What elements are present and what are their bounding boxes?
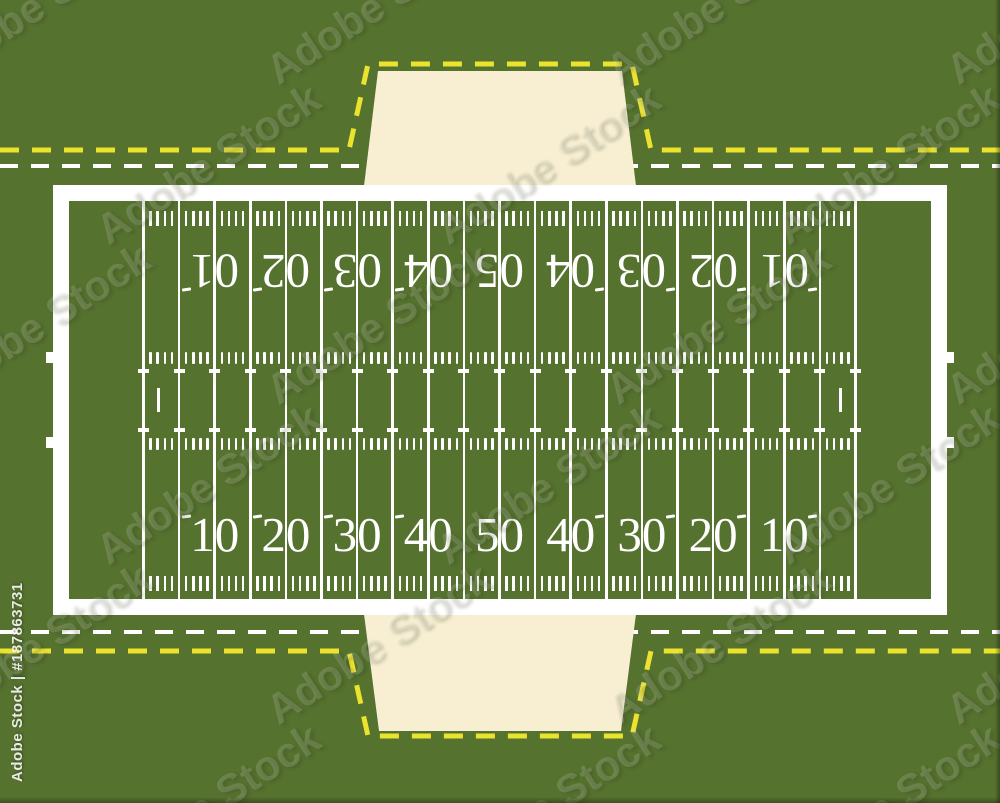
yard-tick-bottom bbox=[221, 576, 224, 591]
yard-tick-top bbox=[769, 211, 772, 226]
hash-mark-upper bbox=[548, 352, 551, 364]
hash-mark-upper bbox=[206, 352, 209, 364]
yard-number-bottom: 30 bbox=[602, 510, 682, 560]
yard-tick-bottom bbox=[477, 576, 480, 591]
yard-tick-top bbox=[584, 211, 587, 226]
hash-crossbar-lower bbox=[565, 428, 576, 432]
hash-crossbar-lower bbox=[636, 428, 647, 432]
yard-tick-bottom bbox=[776, 576, 779, 591]
yard-number-bottom: 20 bbox=[246, 510, 326, 560]
hash-mark-lower bbox=[719, 438, 722, 450]
yard-tick-top bbox=[698, 211, 701, 226]
hash-mark-lower bbox=[655, 438, 658, 450]
yard-tick-bottom bbox=[156, 576, 159, 591]
hash-mark-upper bbox=[847, 352, 850, 364]
yard-tick-top bbox=[612, 211, 615, 226]
yard-tick-bottom bbox=[541, 576, 544, 591]
yard-tick-top bbox=[406, 211, 409, 226]
yard-tick-top bbox=[762, 211, 765, 226]
hash-crossbar-upper bbox=[779, 369, 790, 373]
hash-mark-upper bbox=[164, 352, 167, 364]
yard-number-bottom: 10 bbox=[744, 510, 824, 560]
yard-tick-top bbox=[299, 211, 302, 226]
yard-tick-bottom bbox=[619, 576, 622, 591]
yard-number-bottom: 40 bbox=[531, 510, 611, 560]
yard-number-text: 01 bbox=[760, 246, 809, 296]
yard-tick-top bbox=[349, 211, 352, 226]
yard-tick-bottom bbox=[740, 576, 743, 591]
hash-mark-lower bbox=[740, 438, 743, 450]
hash-crossbar-lower bbox=[352, 428, 363, 432]
hash-mark-upper bbox=[235, 352, 238, 364]
hash-mark-upper bbox=[755, 352, 758, 364]
yard-tick-bottom bbox=[797, 576, 800, 591]
yard-tick-bottom bbox=[199, 576, 202, 591]
yard-tick-top bbox=[541, 211, 544, 226]
hash-mark-upper bbox=[690, 352, 693, 364]
hash-mark-lower bbox=[555, 438, 558, 450]
hash-crossbar-upper bbox=[352, 369, 363, 373]
hash-mark-upper bbox=[520, 352, 523, 364]
hash-mark-lower bbox=[192, 438, 195, 450]
hash-crossbar-lower bbox=[530, 428, 541, 432]
hash-mark-lower bbox=[769, 438, 772, 450]
hash-mark-lower bbox=[634, 438, 637, 450]
hash-mark-upper bbox=[733, 352, 736, 364]
hash-mark-lower bbox=[797, 438, 800, 450]
yard-tick-bottom bbox=[733, 576, 736, 591]
goal-line-dash-left bbox=[157, 388, 160, 412]
yard-tick-top bbox=[598, 211, 601, 226]
yard-number-text: 02 bbox=[689, 246, 738, 296]
hash-mark-upper bbox=[334, 352, 337, 364]
yard-tick-bottom bbox=[662, 576, 665, 591]
yard-tick-bottom bbox=[769, 576, 772, 591]
yard-tick-top bbox=[555, 211, 558, 226]
hash-mark-lower bbox=[577, 438, 580, 450]
yard-tick-top bbox=[434, 211, 437, 226]
hash-mark-lower bbox=[327, 438, 330, 450]
yard-tick-top bbox=[235, 211, 238, 226]
hash-crossbar-upper bbox=[387, 369, 398, 373]
hash-mark-lower bbox=[171, 438, 174, 450]
yard-tick-bottom bbox=[149, 576, 152, 591]
yard-tick-top bbox=[199, 211, 202, 226]
hash-mark-upper bbox=[491, 352, 494, 364]
hash-mark-upper bbox=[313, 352, 316, 364]
hash-crossbar-upper bbox=[245, 369, 256, 373]
hash-mark-lower bbox=[263, 438, 266, 450]
hash-mark-lower bbox=[477, 438, 480, 450]
yard-tick-top bbox=[484, 211, 487, 226]
goal-line-dash-right bbox=[839, 388, 842, 412]
hash-mark-lower bbox=[228, 438, 231, 450]
yard-tick-bottom bbox=[591, 576, 594, 591]
hash-mark-upper bbox=[740, 352, 743, 364]
yard-tick-bottom bbox=[185, 576, 188, 591]
yard-tick-top bbox=[413, 211, 416, 226]
yard-tick-top bbox=[719, 211, 722, 226]
yard-number-text: 10 bbox=[760, 510, 809, 560]
hash-mark-lower bbox=[484, 438, 487, 450]
hash-crossbar-lower bbox=[280, 428, 291, 432]
yard-tick-top bbox=[548, 211, 551, 226]
yard-tick-bottom bbox=[527, 576, 530, 591]
hash-crossbar-lower bbox=[743, 428, 754, 432]
yard-tick-top bbox=[634, 211, 637, 226]
hash-mark-lower bbox=[541, 438, 544, 450]
hash-mark-lower bbox=[306, 438, 309, 450]
yard-tick-top bbox=[648, 211, 651, 226]
hash-mark-lower bbox=[762, 438, 765, 450]
yard-tick-top bbox=[733, 211, 736, 226]
hash-mark-lower bbox=[662, 438, 665, 450]
hash-mark-upper bbox=[584, 352, 587, 364]
yard-number-text: 05 bbox=[475, 246, 524, 296]
hash-crossbar-lower bbox=[672, 428, 683, 432]
hash-mark-upper bbox=[149, 352, 152, 364]
yard-tick-bottom bbox=[377, 576, 380, 591]
yard-tick-top bbox=[171, 211, 174, 226]
yard-tick-bottom bbox=[256, 576, 259, 591]
hash-mark-upper bbox=[199, 352, 202, 364]
yard-tick-bottom bbox=[833, 576, 836, 591]
hash-crossbar-upper bbox=[423, 369, 434, 373]
yard-tick-top bbox=[512, 211, 515, 226]
yard-tick-bottom bbox=[235, 576, 238, 591]
yard-tick-bottom bbox=[705, 576, 708, 591]
hash-mark-lower bbox=[840, 438, 843, 450]
hash-mark-lower bbox=[206, 438, 209, 450]
goal-direction-arrow bbox=[324, 287, 333, 291]
sideline-apron-top bbox=[364, 71, 636, 186]
yard-number-top: 04 bbox=[388, 246, 468, 296]
hash-crossbar-upper bbox=[494, 369, 505, 373]
yard-tick-bottom bbox=[327, 576, 330, 591]
yard-tick-bottom bbox=[755, 576, 758, 591]
yard-number-bottom: 30 bbox=[317, 510, 397, 560]
hash-mark-lower bbox=[626, 438, 629, 450]
hash-mark-upper bbox=[555, 352, 558, 364]
yard-number-top: 05 bbox=[460, 246, 540, 296]
yard-tick-bottom bbox=[263, 576, 266, 591]
hash-mark-lower bbox=[548, 438, 551, 450]
yard-number-text: 10 bbox=[190, 510, 239, 560]
yard-tick-top bbox=[470, 211, 473, 226]
yard-tick-bottom bbox=[555, 576, 558, 591]
yard-tick-bottom bbox=[804, 576, 807, 591]
yard-number-text: 20 bbox=[261, 510, 310, 560]
yard-number-top: 02 bbox=[246, 246, 326, 296]
field-surface: 102030405040302010010203040504030201 bbox=[69, 201, 931, 599]
yard-tick-top bbox=[456, 211, 459, 226]
hash-mark-lower bbox=[448, 438, 451, 450]
goal-direction-arrow bbox=[808, 287, 817, 291]
yard-tick-top bbox=[448, 211, 451, 226]
yard-tick-bottom bbox=[598, 576, 601, 591]
yard-tick-top bbox=[804, 211, 807, 226]
yard-tick-top bbox=[399, 211, 402, 226]
yard-tick-top bbox=[840, 211, 843, 226]
hash-mark-lower bbox=[648, 438, 651, 450]
hash-crossbar-lower bbox=[814, 428, 825, 432]
hash-mark-upper bbox=[527, 352, 530, 364]
hash-mark-upper bbox=[156, 352, 159, 364]
yard-tick-top bbox=[833, 211, 836, 226]
yard-number-top: 03 bbox=[602, 246, 682, 296]
yard-tick-top bbox=[740, 211, 743, 226]
yard-tick-top bbox=[591, 211, 594, 226]
hash-mark-upper bbox=[762, 352, 765, 364]
hash-crossbar-lower bbox=[708, 428, 719, 432]
hash-mark-upper bbox=[505, 352, 508, 364]
hash-mark-upper bbox=[804, 352, 807, 364]
hash-mark-lower bbox=[833, 438, 836, 450]
hash-crossbar-lower bbox=[850, 428, 861, 432]
yard-tick-bottom bbox=[584, 576, 587, 591]
yard-tick-bottom bbox=[612, 576, 615, 591]
field-border: 102030405040302010010203040504030201 bbox=[53, 185, 947, 615]
yard-line bbox=[142, 201, 145, 599]
yard-tick-top bbox=[377, 211, 380, 226]
yard-number-top: 01 bbox=[744, 246, 824, 296]
hash-mark-lower bbox=[413, 438, 416, 450]
hash-mark-lower bbox=[470, 438, 473, 450]
yard-tick-top bbox=[520, 211, 523, 226]
yard-tick-bottom bbox=[840, 576, 843, 591]
hash-mark-lower bbox=[270, 438, 273, 450]
yard-tick-top bbox=[242, 211, 245, 226]
yard-tick-bottom bbox=[812, 576, 815, 591]
yard-tick-bottom bbox=[562, 576, 565, 591]
hash-mark-upper bbox=[683, 352, 686, 364]
yard-tick-bottom bbox=[349, 576, 352, 591]
hash-mark-lower bbox=[242, 438, 245, 450]
yard-tick-bottom bbox=[313, 576, 316, 591]
yard-tick-top bbox=[164, 211, 167, 226]
yard-tick-bottom bbox=[520, 576, 523, 591]
yard-number-text: 40 bbox=[546, 510, 595, 560]
hash-mark-lower bbox=[384, 438, 387, 450]
hash-crossbar-upper bbox=[565, 369, 576, 373]
hash-crossbar-upper bbox=[601, 369, 612, 373]
yard-tick-bottom bbox=[420, 576, 423, 591]
yard-tick-top bbox=[334, 211, 337, 226]
hash-mark-lower bbox=[377, 438, 380, 450]
hash-mark-lower bbox=[164, 438, 167, 450]
yard-tick-bottom bbox=[292, 576, 295, 591]
yard-tick-top bbox=[263, 211, 266, 226]
yard-tick-bottom bbox=[334, 576, 337, 591]
yard-number-text: 04 bbox=[546, 246, 595, 296]
hash-mark-lower bbox=[726, 438, 729, 450]
yard-number-text: 30 bbox=[617, 510, 666, 560]
yard-tick-bottom bbox=[548, 576, 551, 591]
hash-mark-upper bbox=[826, 352, 829, 364]
hash-mark-upper bbox=[370, 352, 373, 364]
yard-tick-top bbox=[270, 211, 273, 226]
yard-tick-top bbox=[790, 211, 793, 226]
hash-mark-upper bbox=[192, 352, 195, 364]
hash-crossbar-upper bbox=[280, 369, 291, 373]
yard-line bbox=[854, 201, 857, 599]
yard-tick-top bbox=[149, 211, 152, 226]
yard-tick-bottom bbox=[448, 576, 451, 591]
hash-crossbar-upper bbox=[743, 369, 754, 373]
yard-tick-top bbox=[826, 211, 829, 226]
yard-tick-top bbox=[705, 211, 708, 226]
yard-tick-top bbox=[847, 211, 850, 226]
yard-tick-top bbox=[619, 211, 622, 226]
yard-tick-bottom bbox=[505, 576, 508, 591]
yard-tick-bottom bbox=[577, 576, 580, 591]
hash-mark-upper bbox=[769, 352, 772, 364]
hash-mark-lower bbox=[441, 438, 444, 450]
hash-mark-lower bbox=[221, 438, 224, 450]
hash-crossbar-lower bbox=[138, 428, 149, 432]
hash-mark-upper bbox=[263, 352, 266, 364]
hash-mark-upper bbox=[833, 352, 836, 364]
hash-mark-upper bbox=[406, 352, 409, 364]
hash-mark-lower bbox=[669, 438, 672, 450]
hash-mark-lower bbox=[406, 438, 409, 450]
hash-mark-lower bbox=[420, 438, 423, 450]
yard-tick-top bbox=[256, 211, 259, 226]
hash-mark-upper bbox=[185, 352, 188, 364]
hash-mark-upper bbox=[612, 352, 615, 364]
hash-mark-upper bbox=[399, 352, 402, 364]
hash-mark-upper bbox=[171, 352, 174, 364]
yard-tick-top bbox=[206, 211, 209, 226]
hash-mark-upper bbox=[342, 352, 345, 364]
yard-number-top: 03 bbox=[317, 246, 397, 296]
yard-number-bottom: 10 bbox=[175, 510, 255, 560]
hash-crossbar-upper bbox=[174, 369, 185, 373]
hash-mark-upper bbox=[698, 352, 701, 364]
hash-mark-upper bbox=[662, 352, 665, 364]
yard-tick-bottom bbox=[306, 576, 309, 591]
hash-crossbar-lower bbox=[316, 428, 327, 432]
hash-mark-lower bbox=[612, 438, 615, 450]
hash-crossbar-lower bbox=[209, 428, 220, 432]
hash-mark-lower bbox=[199, 438, 202, 450]
yard-tick-bottom bbox=[299, 576, 302, 591]
yard-tick-bottom bbox=[669, 576, 672, 591]
yard-tick-bottom bbox=[270, 576, 273, 591]
yard-tick-top bbox=[577, 211, 580, 226]
yard-number-top: 04 bbox=[531, 246, 611, 296]
yard-tick-bottom bbox=[206, 576, 209, 591]
yard-number-bottom: 20 bbox=[673, 510, 753, 560]
hash-mark-upper bbox=[349, 352, 352, 364]
hash-mark-lower bbox=[527, 438, 530, 450]
yard-tick-bottom bbox=[626, 576, 629, 591]
hash-mark-lower bbox=[185, 438, 188, 450]
yard-tick-top bbox=[655, 211, 658, 226]
hash-mark-upper bbox=[812, 352, 815, 364]
hash-crossbar-upper bbox=[458, 369, 469, 373]
hash-mark-lower bbox=[690, 438, 693, 450]
hash-crossbar-lower bbox=[779, 428, 790, 432]
hash-mark-upper bbox=[840, 352, 843, 364]
football-field-illustration: 102030405040302010010203040504030201 Ado… bbox=[0, 0, 1000, 803]
yard-tick-top bbox=[370, 211, 373, 226]
yard-tick-bottom bbox=[406, 576, 409, 591]
hash-mark-lower bbox=[505, 438, 508, 450]
yard-tick-bottom bbox=[726, 576, 729, 591]
yard-tick-top bbox=[477, 211, 480, 226]
yard-tick-top bbox=[683, 211, 686, 226]
yard-tick-bottom bbox=[648, 576, 651, 591]
hash-mark-lower bbox=[584, 438, 587, 450]
yard-number-text: 03 bbox=[617, 246, 666, 296]
yard-tick-bottom bbox=[370, 576, 373, 591]
yard-tick-bottom bbox=[484, 576, 487, 591]
hash-mark-lower bbox=[619, 438, 622, 450]
yard-tick-bottom bbox=[434, 576, 437, 591]
hash-mark-lower bbox=[334, 438, 337, 450]
hash-mark-lower bbox=[790, 438, 793, 450]
yard-tick-top bbox=[505, 211, 508, 226]
hash-mark-lower bbox=[520, 438, 523, 450]
hash-mark-lower bbox=[342, 438, 345, 450]
yard-number-text: 03 bbox=[333, 246, 382, 296]
yard-tick-top bbox=[797, 211, 800, 226]
yard-tick-bottom bbox=[655, 576, 658, 591]
hash-mark-upper bbox=[299, 352, 302, 364]
yard-tick-bottom bbox=[399, 576, 402, 591]
hash-mark-lower bbox=[804, 438, 807, 450]
hash-mark-upper bbox=[562, 352, 565, 364]
yard-tick-top bbox=[384, 211, 387, 226]
hash-mark-upper bbox=[270, 352, 273, 364]
hash-mark-upper bbox=[797, 352, 800, 364]
hash-crossbar-lower bbox=[387, 428, 398, 432]
yard-number-bottom: 50 bbox=[460, 510, 540, 560]
hash-crossbar-upper bbox=[636, 369, 647, 373]
yard-tick-bottom bbox=[228, 576, 231, 591]
hash-mark-upper bbox=[278, 352, 281, 364]
yard-tick-top bbox=[192, 211, 195, 226]
hash-mark-lower bbox=[256, 438, 259, 450]
yard-tick-bottom bbox=[384, 576, 387, 591]
yard-tick-top bbox=[662, 211, 665, 226]
hash-crossbar-upper bbox=[209, 369, 220, 373]
yard-tick-top bbox=[342, 211, 345, 226]
hash-mark-lower bbox=[733, 438, 736, 450]
yard-tick-top bbox=[156, 211, 159, 226]
yard-tick-bottom bbox=[342, 576, 345, 591]
hash-mark-upper bbox=[228, 352, 231, 364]
hash-mark-lower bbox=[698, 438, 701, 450]
yard-tick-top bbox=[491, 211, 494, 226]
hash-mark-lower bbox=[149, 438, 152, 450]
hash-mark-lower bbox=[812, 438, 815, 450]
hash-mark-lower bbox=[491, 438, 494, 450]
hash-mark-upper bbox=[484, 352, 487, 364]
hash-mark-lower bbox=[235, 438, 238, 450]
hash-mark-upper bbox=[634, 352, 637, 364]
yard-tick-bottom bbox=[441, 576, 444, 591]
hash-crossbar-upper bbox=[138, 369, 149, 373]
hash-mark-upper bbox=[363, 352, 366, 364]
yard-tick-bottom bbox=[363, 576, 366, 591]
yard-tick-top bbox=[185, 211, 188, 226]
yard-tick-top bbox=[327, 211, 330, 226]
yard-tick-bottom bbox=[690, 576, 693, 591]
yard-tick-top bbox=[420, 211, 423, 226]
hash-mark-lower bbox=[591, 438, 594, 450]
